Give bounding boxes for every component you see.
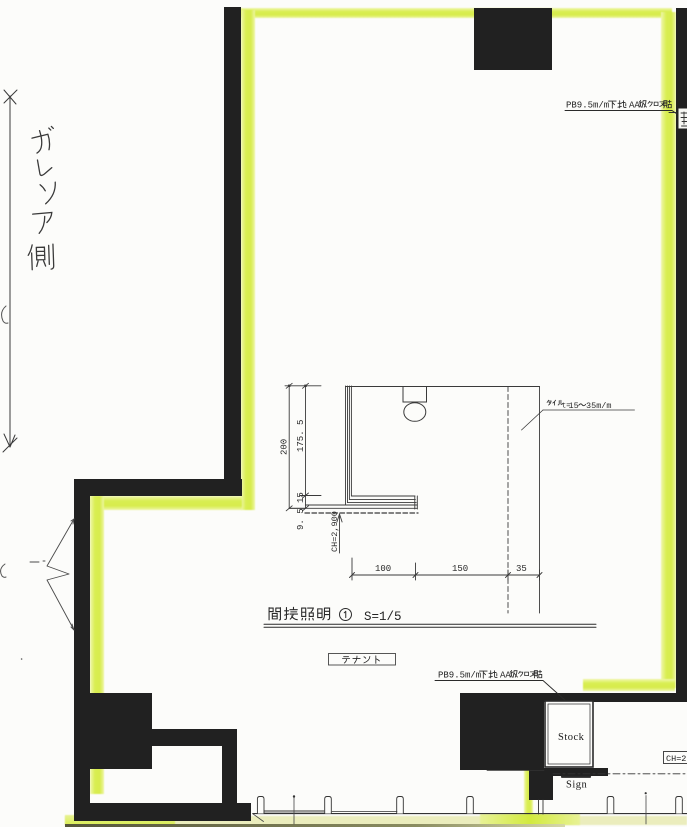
svg-text:Stock: Stock: [558, 732, 585, 743]
svg-text:100: 100: [375, 564, 391, 574]
svg-text:S=1/5: S=1/5: [364, 610, 402, 624]
svg-text:CH=2: CH=2: [666, 754, 686, 764]
svg-text:35m/m: 35m/m: [586, 401, 612, 411]
svg-text:PB9.5m/m: PB9.5m/m: [438, 671, 481, 681]
svg-text:AA: AA: [500, 671, 511, 681]
svg-text:PB9.5m/m: PB9.5m/m: [566, 101, 609, 111]
svg-text:15: 15: [296, 492, 306, 503]
svg-text:150: 150: [452, 564, 468, 574]
svg-text:35: 35: [516, 564, 527, 574]
svg-text:AA: AA: [629, 101, 640, 111]
svg-text:200: 200: [280, 439, 290, 455]
svg-text:CH=2,900: CH=2,900: [330, 511, 340, 552]
svg-text:15: 15: [569, 401, 579, 411]
svg-text:9. 5: 9. 5: [296, 508, 306, 530]
svg-text:Sign: Sign: [566, 780, 588, 791]
svg-text:175. 5: 175. 5: [296, 420, 306, 452]
